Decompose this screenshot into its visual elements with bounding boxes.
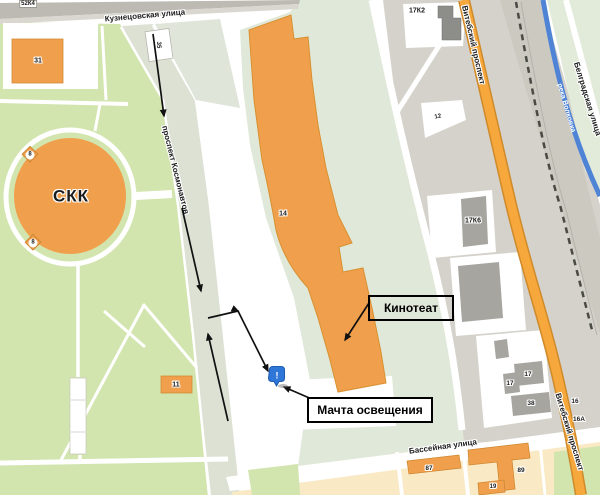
callout-mast: Мачта освещения xyxy=(307,397,433,423)
route-arrow-south-1 xyxy=(153,34,164,116)
route-arrow-south-2 xyxy=(182,208,201,291)
marker-shadow xyxy=(278,384,288,388)
callout-cinema: Кинотеат xyxy=(368,295,454,321)
annotation-layer: ! xyxy=(0,0,600,495)
map-marker[interactable]: ! xyxy=(269,367,289,389)
marker-glyph: ! xyxy=(276,371,279,381)
callout-mast-text: Мачта освещения xyxy=(317,403,423,417)
route-arrows xyxy=(153,34,369,421)
callout-arrow-cinema xyxy=(345,303,369,340)
route-arrow-to-marker xyxy=(208,311,268,371)
map-canvas[interactable]: Кузнецовская улица проспект Космонавтов … xyxy=(0,0,600,495)
route-arrow-north xyxy=(208,334,228,421)
callout-cinema-text: Кинотеат xyxy=(384,301,438,315)
